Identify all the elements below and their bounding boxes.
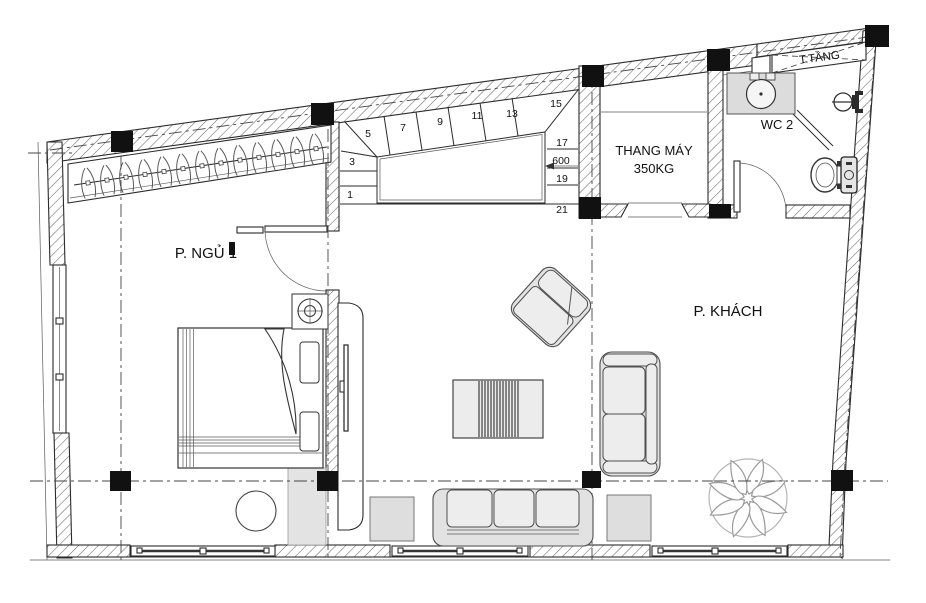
elevator-left-wall: [579, 66, 600, 218]
tv-console-outline: [338, 303, 363, 530]
nightstand: [292, 294, 328, 329]
stair-void-outer: [377, 132, 545, 203]
stair-number: 21: [556, 204, 568, 216]
stair-number: 19: [556, 173, 568, 185]
bottom-wall-pier-4: [788, 545, 843, 557]
wc-door: [734, 161, 786, 212]
side-table-left: [370, 497, 414, 541]
column: [582, 65, 604, 87]
bedroom-door-swing-arc: [265, 229, 327, 291]
floor-plan-page: 1 3 5 7 9 11 13 15 17 600 19 21: [0, 0, 926, 603]
elevator-door-jamb-right: [682, 204, 710, 217]
bedroom-door-leaf: [265, 226, 327, 232]
stair-number: 600: [552, 155, 570, 167]
stair-number: 17: [556, 137, 568, 149]
stair-number: 13: [506, 108, 518, 120]
bedroom-label: P. NGỦ 1: [175, 244, 237, 262]
bedroom-door: [229, 226, 327, 291]
faucet: [766, 73, 775, 80]
column: [709, 204, 731, 218]
column: [317, 471, 338, 491]
tv-mount: [340, 381, 344, 392]
wc-diagonal-wall-b: [797, 110, 833, 146]
wc-door-swing-arc: [740, 163, 786, 211]
stair-number: 5: [365, 128, 371, 140]
column: [579, 197, 601, 219]
wc-label: WC 2: [761, 117, 794, 132]
shower-icon: [832, 91, 863, 113]
coffee-table: [453, 380, 543, 438]
tv-console: [338, 303, 363, 530]
left-wall-lower: [54, 433, 72, 558]
stair-number: 11: [472, 110, 483, 122]
column: [707, 49, 730, 71]
bottom-window-2: [392, 546, 528, 556]
windows: [53, 265, 787, 556]
bedroom-door-wall-stub: [237, 227, 263, 233]
sink-counter: [727, 73, 795, 114]
column: [865, 25, 889, 47]
bottom-window-1: [131, 546, 275, 556]
stair-number: 7: [400, 122, 406, 134]
side-table-right: [607, 495, 651, 541]
stair-number: 15: [550, 98, 562, 110]
wc-diagonal-wall-a: [793, 114, 829, 150]
bottom-wall-pier-2: [275, 545, 390, 557]
wc-door-leaf: [734, 161, 740, 212]
living-room-furniture: [370, 263, 660, 546]
bottom-wall-pier-3: [530, 545, 650, 557]
plant-icon: [707, 457, 789, 539]
stair-number: 1: [347, 189, 353, 201]
bed: [178, 328, 323, 468]
column: [831, 470, 853, 491]
floor-plan-drawing: 1 3 5 7 9 11 13 15 17 600 19 21: [0, 0, 926, 603]
elevator-door-jamb-left: [600, 204, 628, 217]
armchair: [507, 263, 595, 351]
column: [582, 471, 601, 488]
bottom-window-3: [652, 546, 787, 556]
column: [110, 471, 131, 491]
elevator-label-line1: THANG MÁY: [615, 143, 693, 158]
wc-room: [727, 73, 863, 193]
tv-screen: [344, 345, 348, 431]
living-room-label: P. KHÁCH: [694, 303, 763, 320]
toilet: [811, 157, 857, 193]
left-wall-upper: [47, 142, 65, 265]
column: [311, 103, 334, 125]
pillow: [300, 342, 319, 383]
faucet: [750, 73, 759, 80]
elevator-label-line2: 350KG: [634, 161, 674, 176]
stair-number: 3: [349, 156, 355, 168]
column: [111, 131, 133, 152]
sofa: [433, 489, 593, 546]
left-boundary-line: [38, 142, 47, 560]
elevator-right-wall: [708, 50, 723, 218]
loveseat: [600, 352, 660, 476]
stair-number: 9: [437, 116, 443, 128]
wc-south-wall-right: [786, 205, 850, 218]
bottom-wall-pier-1: [47, 545, 130, 557]
pillow: [300, 412, 319, 451]
pouf: [236, 491, 276, 531]
left-window: [53, 265, 66, 433]
